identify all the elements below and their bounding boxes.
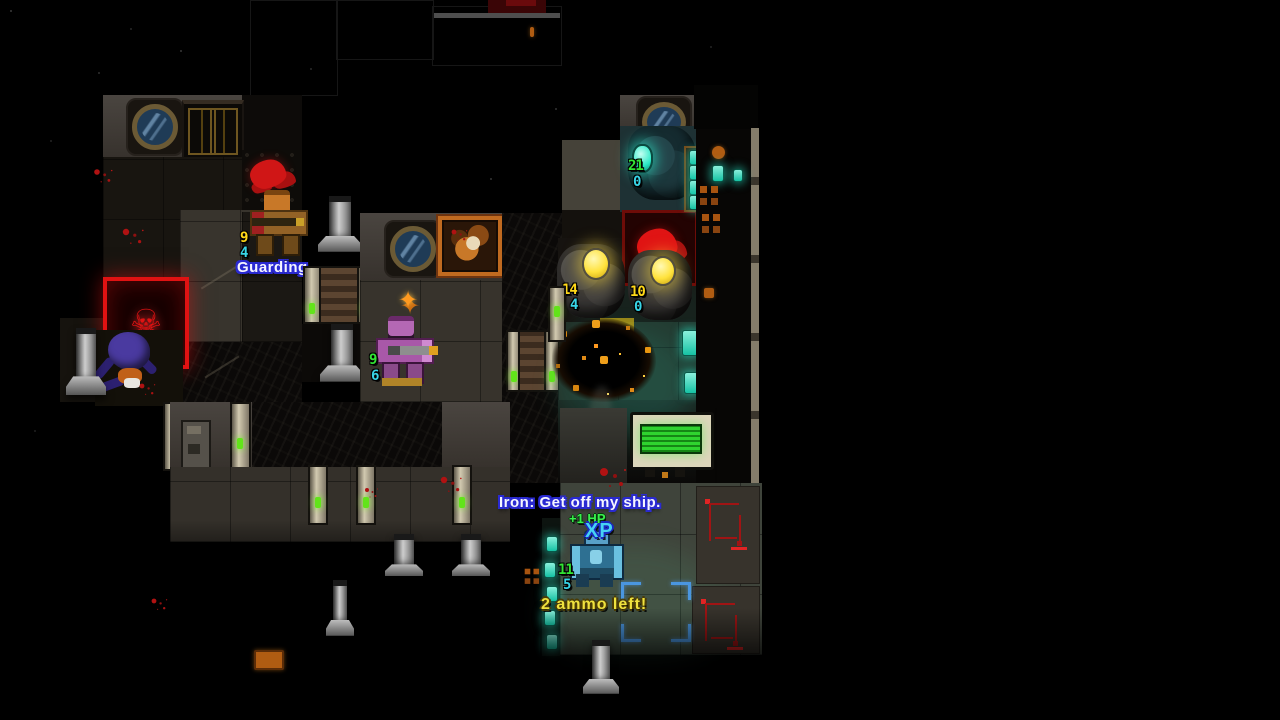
- wall-trim: [356, 465, 376, 525]
- hull-pipe: [434, 13, 560, 18]
- blood-dots: [365, 488, 369, 492]
- teal-light: [712, 165, 724, 182]
- wall-dark: [242, 95, 302, 153]
- bollard-pillar: [326, 580, 354, 638]
- rock-robot[interactable]: [557, 244, 625, 318]
- alien-corpse[interactable]: [98, 330, 158, 400]
- alien-body: [108, 332, 150, 370]
- robot1-armor: 4: [570, 297, 577, 313]
- scout-armor: 6: [371, 368, 378, 384]
- hull-light: [530, 27, 534, 37]
- orange-lights: [702, 214, 709, 221]
- blood-dots: [94, 169, 100, 175]
- locker-doors: [182, 100, 244, 162]
- scratch-mark: [205, 356, 240, 379]
- blood-dots: [441, 477, 447, 483]
- teal-light: [546, 536, 558, 552]
- player-leg: [600, 574, 613, 587]
- circuit-tile: [696, 486, 760, 584]
- wall-dark-br: [560, 408, 627, 483]
- blood-dots: [123, 229, 129, 235]
- blood-splat: [247, 157, 288, 192]
- guard-soldier[interactable]: [248, 190, 306, 252]
- bollard-pillar: [452, 534, 490, 578]
- bollard-pillar: [318, 196, 362, 254]
- bollard-pillar: [66, 328, 106, 398]
- wall-trim: [452, 465, 472, 525]
- rust-dot: [712, 146, 725, 159]
- player-tank: [590, 550, 602, 564]
- robot-orb: [582, 248, 610, 280]
- drone-hp: 21: [628, 158, 643, 174]
- blood-dots: [600, 468, 608, 476]
- locker-door: [210, 108, 238, 155]
- scout-gun: [388, 346, 438, 355]
- wall-trim: [230, 402, 251, 470]
- scratch-mark: [201, 264, 239, 289]
- scout-hp: 9: [369, 352, 376, 368]
- led-green: [363, 497, 369, 508]
- wall-trim: [548, 286, 566, 342]
- alien-fang: [124, 378, 140, 388]
- grate-rough: [252, 402, 442, 467]
- door-slats: [319, 266, 360, 324]
- muzzle-spark-icon: ✦: [398, 286, 418, 314]
- rust-dot: [704, 288, 714, 298]
- guard-gun: [252, 218, 304, 226]
- scout-boots: [382, 378, 422, 386]
- led-green: [237, 438, 243, 449]
- purple-soldier[interactable]: [376, 314, 438, 388]
- wall-equipment: [181, 420, 211, 470]
- game-viewport[interactable]: ☠ 9 4 Guarding ✦: [0, 0, 1280, 720]
- wall-cap: [694, 85, 758, 129]
- bollard-pillar: [583, 640, 619, 696]
- bollard-pillar: [320, 324, 364, 384]
- robot2-hp: 10: [630, 284, 645, 300]
- led-green: [511, 371, 517, 382]
- explosion-embers: [600, 356, 608, 364]
- led-green: [315, 497, 321, 508]
- ammo-warning-text: 2 ammo left!: [541, 596, 647, 614]
- drone-armor: 0: [633, 174, 640, 190]
- porthole-window-icon: [384, 220, 442, 278]
- floor-scuffed: [182, 342, 302, 402]
- xp-popup: XP: [585, 520, 614, 543]
- hull-outline: [336, 0, 434, 60]
- terminal-legs: [645, 467, 655, 477]
- guard-leg: [282, 234, 300, 256]
- terminal-console[interactable]: [630, 412, 714, 470]
- wall-painting-icon: [438, 216, 502, 276]
- dropped-item[interactable]: [254, 650, 284, 670]
- terminal-screen-icon: [640, 424, 702, 454]
- floor-tile-grey: [562, 140, 622, 210]
- wall-wing: [442, 402, 510, 470]
- floor-fade: [540, 608, 780, 698]
- speech-text: Iron: Get off my ship.: [499, 494, 661, 511]
- stars: [10, 10, 12, 12]
- led-green: [459, 497, 465, 508]
- wall-trim: [308, 465, 328, 525]
- led-green: [554, 306, 560, 317]
- blood-dots: [140, 384, 145, 389]
- bracket-corner: [671, 582, 691, 600]
- led-green: [309, 303, 315, 314]
- porthole-window-icon: [126, 98, 184, 156]
- guard-hp: 9: [240, 230, 247, 246]
- red-vent-bright: [506, 0, 536, 6]
- guard-leg: [256, 234, 274, 256]
- guard-status-label: Guarding: [237, 259, 308, 276]
- orange-lights: [525, 569, 531, 575]
- robot-orb: [650, 256, 676, 286]
- player-hp: 11: [558, 562, 573, 578]
- blood-dots: [152, 599, 157, 604]
- robot2-armor: 0: [634, 299, 641, 315]
- player-leg: [576, 574, 589, 587]
- teal-light: [733, 169, 743, 182]
- hull-outline: [250, 0, 338, 96]
- teal-light: [544, 562, 556, 578]
- bollard-pillar: [385, 534, 423, 578]
- blood-dots: [452, 230, 457, 235]
- player-armor: 5: [563, 577, 570, 593]
- orange-lights: [700, 186, 707, 193]
